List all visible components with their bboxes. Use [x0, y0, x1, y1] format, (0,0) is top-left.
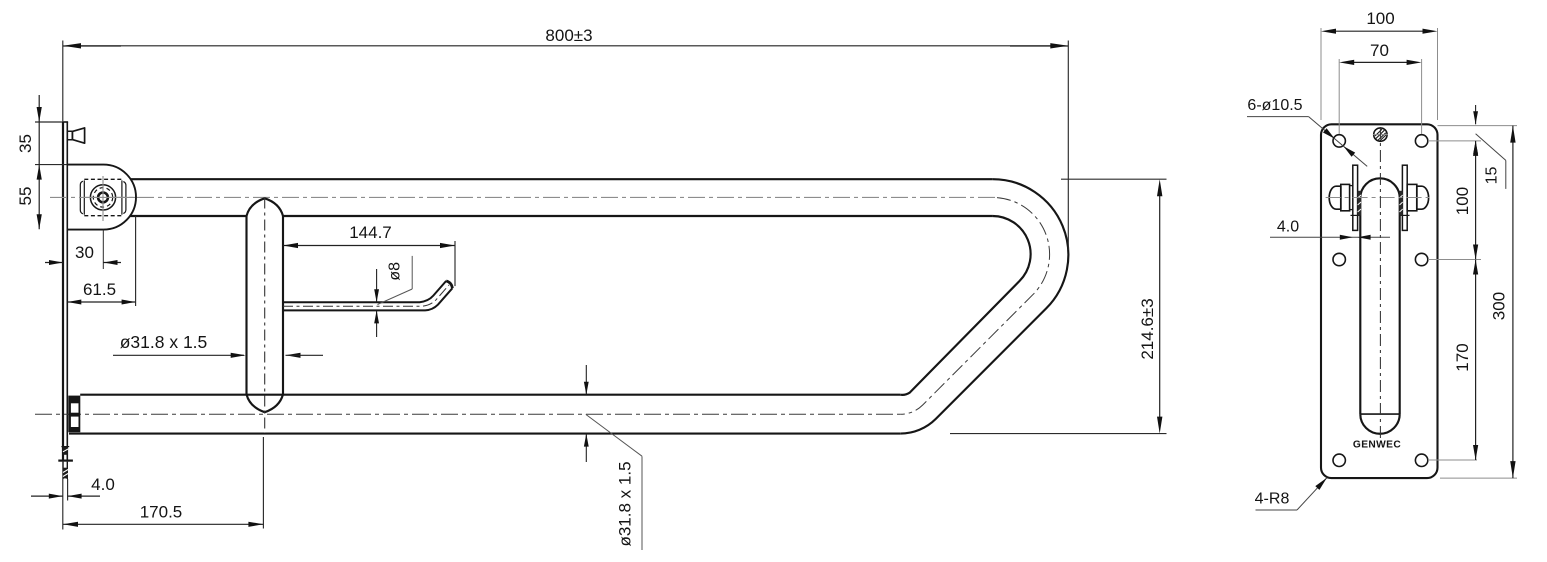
svg-text:144.7: 144.7 — [349, 223, 392, 242]
svg-text:300: 300 — [1490, 292, 1509, 320]
svg-text:4.0: 4.0 — [1277, 219, 1299, 236]
svg-text:170: 170 — [1453, 343, 1472, 371]
svg-text:170.5: 170.5 — [140, 503, 183, 522]
svg-text:4-R8: 4-R8 — [1255, 491, 1290, 508]
svg-text:100: 100 — [1366, 9, 1394, 28]
svg-text:70: 70 — [1370, 41, 1389, 60]
svg-text:30: 30 — [75, 243, 94, 262]
svg-text:ø8: ø8 — [387, 262, 404, 281]
svg-text:61.5: 61.5 — [83, 280, 116, 299]
svg-text:6-ø10.5: 6-ø10.5 — [1247, 97, 1302, 114]
svg-text:15: 15 — [1483, 167, 1500, 185]
svg-text:55: 55 — [16, 187, 35, 206]
svg-text:35: 35 — [16, 134, 35, 153]
svg-text:ø31.8 x 1.5: ø31.8 x 1.5 — [616, 461, 635, 546]
svg-text:800±3: 800±3 — [545, 26, 592, 45]
svg-text:214.6±3: 214.6±3 — [1138, 298, 1157, 359]
svg-text:100: 100 — [1453, 187, 1472, 215]
svg-text:GENWEC: GENWEC — [1353, 439, 1401, 450]
svg-text:ø31.8 x 1.5: ø31.8 x 1.5 — [120, 332, 208, 352]
svg-text:4.0: 4.0 — [91, 475, 115, 494]
